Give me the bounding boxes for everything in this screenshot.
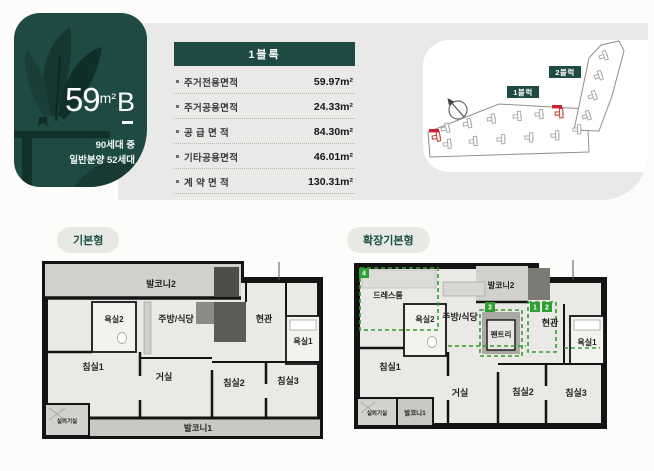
- svg-text:1: 1: [533, 305, 537, 312]
- row-value: 59.97m²: [314, 76, 353, 88]
- brochure-page: 1블럭 2블럭 59m²B 9: [0, 0, 654, 471]
- room-label-ac-room: 실외기실: [57, 417, 77, 425]
- row-label: 주거공용면적: [184, 100, 238, 114]
- row-label: 공 급 면 적: [184, 125, 229, 139]
- room-label-pantry: 팬트리: [491, 329, 512, 339]
- block2-badge: 2블럭: [549, 66, 581, 78]
- block2-boundary: [574, 41, 624, 131]
- svg-text:4: 4: [362, 271, 366, 278]
- unit-location-marker: [429, 129, 439, 132]
- room-label-bath1: 욕실1: [577, 337, 597, 347]
- room-label-kitchen: 주방/식당: [442, 311, 478, 322]
- block1-badge: 1블럭: [507, 86, 539, 98]
- supply-line2: 일반분양 52세대: [65, 153, 135, 168]
- table-row: 주거전용면적 59.97m²: [174, 69, 355, 94]
- bullet-icon: [176, 155, 179, 158]
- row-value: 24.33m²: [314, 101, 353, 113]
- room-label-balcony1: 발코니1: [404, 408, 426, 417]
- room-label-bedroom3: 침실3: [565, 387, 587, 398]
- table-row: 기타공용면적 46.01m²: [174, 144, 355, 169]
- room-label-entrance: 현관: [542, 317, 559, 328]
- extended-floor-plan: 4 3 1 2 드레스룸 욕실2 주방/식당 발코니2 팬트리 현관 욕실1 침…: [348, 256, 612, 446]
- supply-line1: 90세대 중: [65, 138, 135, 153]
- room-label-kitchen: 주방/식당: [158, 313, 194, 324]
- site-plan-panel: 1블럭 2블럭: [423, 40, 648, 172]
- room-label-bedroom1: 침실1: [82, 361, 104, 372]
- area-table: 1블록 주거전용면적 59.97m² 주거공용면적 24.33m² 공 급 면 …: [174, 42, 355, 194]
- room-label-balcony1: 발코니1: [184, 423, 212, 433]
- room-label-living: 거실: [156, 371, 173, 382]
- unit-card-content: 59m²B 90세대 중 일반분양 52세대: [65, 83, 135, 168]
- row-label: 기타공용면적: [184, 150, 238, 164]
- bullet-icon: [176, 80, 179, 83]
- room-label-balcony2: 발코니2: [146, 278, 176, 289]
- area-table-header: 1블록: [174, 42, 355, 66]
- north-compass-icon: [448, 98, 468, 119]
- unit-type-letter: B: [117, 87, 135, 117]
- extended-plan-pill: 확장기본형: [347, 227, 430, 253]
- supply-info: 90세대 중 일반분양 52세대: [65, 138, 135, 168]
- room-label-bath2: 욕실2: [104, 314, 124, 324]
- room-label-bedroom3: 침실3: [277, 375, 299, 386]
- area-table-rows: 주거전용면적 59.97m² 주거공용면적 24.33m² 공 급 면 적 84…: [174, 69, 355, 194]
- table-row: 주거공용면적 24.33m²: [174, 94, 355, 119]
- row-value: 84.30m²: [314, 126, 353, 138]
- room-label-living: 거실: [452, 387, 469, 398]
- table-row: 계 약 면 적 130.31m²: [174, 169, 355, 194]
- room-label-bath2: 욕실2: [415, 314, 435, 324]
- bullet-icon: [176, 180, 179, 183]
- room-label-entrance: 현관: [256, 313, 273, 324]
- title-underscore: [122, 121, 133, 124]
- block1-boundary: [428, 104, 589, 157]
- row-value: 46.01m²: [314, 151, 353, 163]
- svg-text:3: 3: [488, 305, 492, 312]
- row-value: 130.31m²: [308, 176, 353, 188]
- room-label-ac-room: 실외기실: [367, 409, 387, 417]
- unit-size-number: 59: [65, 81, 100, 118]
- svg-text:1블럭: 1블럭: [513, 87, 532, 97]
- room-label-balcony2: 발코니2: [488, 280, 515, 290]
- extension-badge-1: 1: [530, 302, 540, 312]
- table-row: 공 급 면 적 84.30m²: [174, 119, 355, 144]
- extension-badge-4: 4: [359, 268, 369, 278]
- unit-type-card: 59m²B 90세대 중 일반분양 52세대: [14, 13, 147, 187]
- bullet-icon: [176, 105, 179, 108]
- site-plan-drawing: 1블럭 2블럭: [423, 40, 648, 172]
- extension-badge-2: 2: [542, 302, 552, 312]
- room-label-bath1: 욕실1: [293, 336, 313, 346]
- svg-text:2: 2: [545, 305, 549, 312]
- svg-text:2블럭: 2블럭: [555, 67, 574, 77]
- row-label: 주거전용면적: [184, 75, 238, 89]
- basic-plan-pill: 기본형: [57, 227, 119, 253]
- row-label: 계 약 면 적: [184, 175, 229, 189]
- bullet-icon: [176, 130, 179, 133]
- unit-location-marker: [552, 105, 562, 108]
- room-label-bedroom2: 침실2: [512, 386, 534, 397]
- unit-type-title: 59m²B: [65, 83, 135, 116]
- room-label-bedroom1: 침실1: [379, 361, 401, 372]
- extension-badge-3: 3: [485, 302, 495, 312]
- room-label-dressroom: 드레스룸: [373, 290, 403, 300]
- room-label-bedroom2: 침실2: [223, 377, 245, 388]
- unit-size-unit: m²: [100, 90, 116, 106]
- basic-floor-plan: 발코니2 욕실2 주방/식당 현관 욕실1 침실1 거실 침실2 침실3 실외기…: [36, 258, 324, 448]
